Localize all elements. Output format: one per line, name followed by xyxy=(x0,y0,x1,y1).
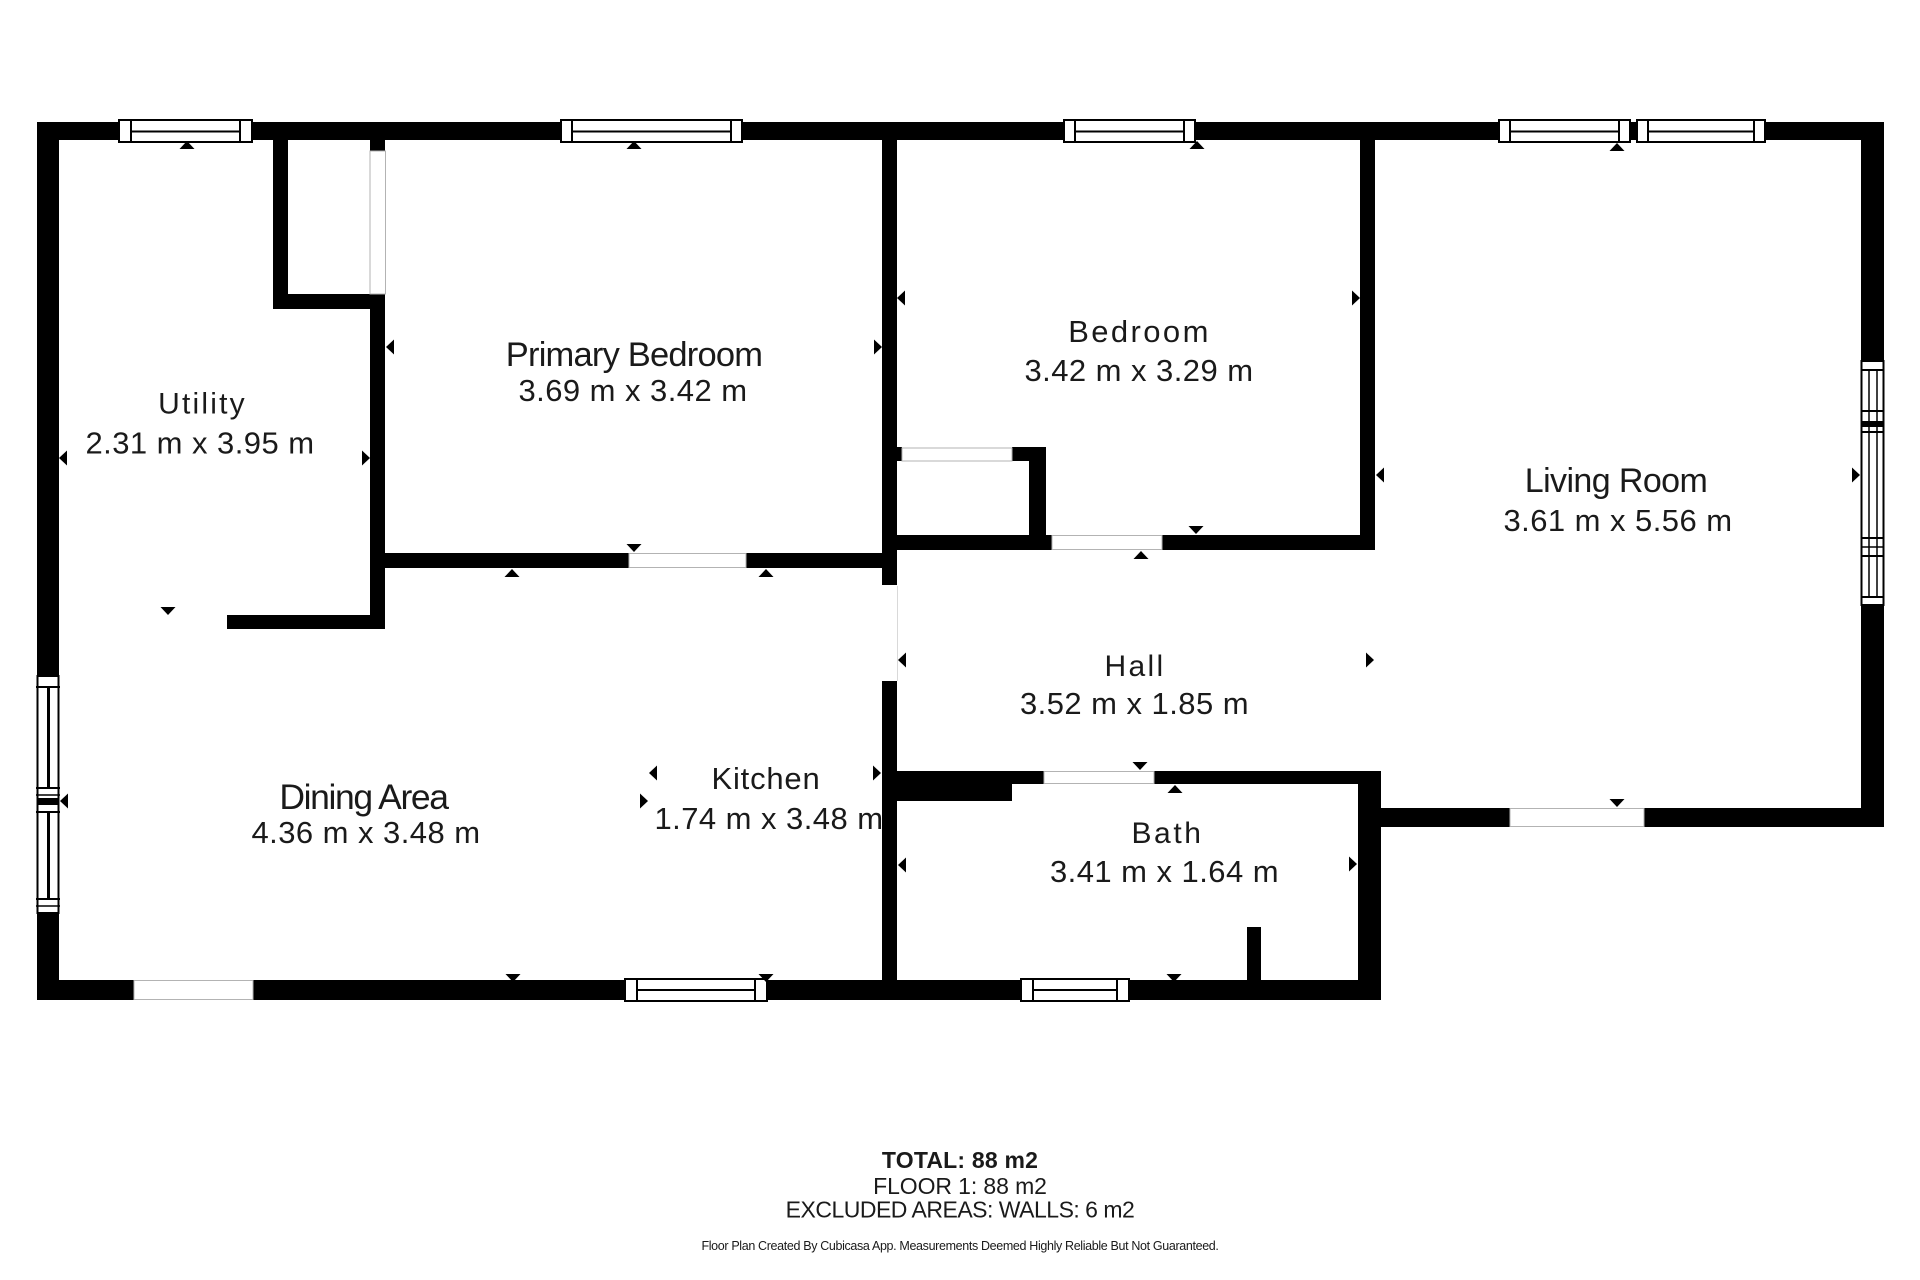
svg-text:Bath: Bath xyxy=(1131,817,1203,850)
svg-text:Living Room: Living Room xyxy=(1525,462,1707,500)
svg-text:3.69 m x 3.42 m: 3.69 m x 3.42 m xyxy=(518,373,747,408)
svg-text:Bedroom: Bedroom xyxy=(1068,314,1211,349)
svg-text:1.74 m x 3.48 m: 1.74 m x 3.48 m xyxy=(654,801,883,836)
svg-text:Floor Plan Created By Cubicasa: Floor Plan Created By Cubicasa App. Meas… xyxy=(701,1239,1218,1253)
svg-text:EXCLUDED AREAS: WALLS: 6 m2: EXCLUDED AREAS: WALLS: 6 m2 xyxy=(786,1197,1135,1223)
svg-text:Hall: Hall xyxy=(1105,650,1166,683)
svg-text:2.31 m x 3.95 m: 2.31 m x 3.95 m xyxy=(85,426,314,461)
svg-text:3.52 m x 1.85 m: 3.52 m x 1.85 m xyxy=(1020,686,1249,721)
svg-text:3.42 m x 3.29 m: 3.42 m x 3.29 m xyxy=(1024,353,1253,388)
svg-text:FLOOR 1: 88 m2: FLOOR 1: 88 m2 xyxy=(873,1173,1047,1199)
svg-text:4.36 m x 3.48 m: 4.36 m x 3.48 m xyxy=(251,815,480,850)
svg-text:Dining Area: Dining Area xyxy=(279,777,449,817)
svg-text:TOTAL: 88 m2: TOTAL: 88 m2 xyxy=(882,1147,1038,1173)
svg-text:3.61 m x 5.56 m: 3.61 m x 5.56 m xyxy=(1503,503,1732,538)
svg-text:Kitchen: Kitchen xyxy=(712,761,821,796)
svg-text:Primary Bedroom: Primary Bedroom xyxy=(506,336,762,374)
svg-text:3.41 m x 1.64 m: 3.41 m x 1.64 m xyxy=(1050,854,1279,889)
svg-text:Utility: Utility xyxy=(158,388,247,421)
